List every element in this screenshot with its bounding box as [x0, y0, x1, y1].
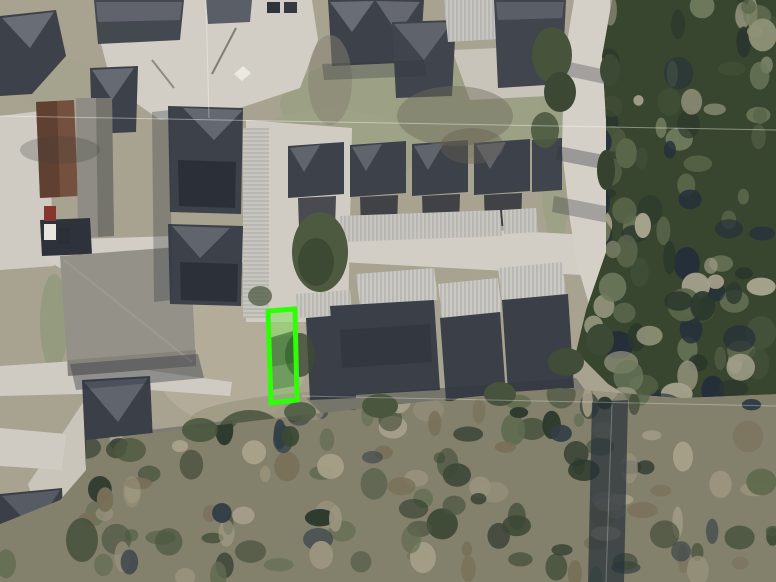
forest-edge-5 [484, 382, 516, 406]
car-dark [58, 228, 70, 244]
forest-edge-4 [548, 348, 584, 376]
shadow-bare-tree-plaza [308, 35, 352, 125]
shadow-bare-tree-lawn-2 [440, 128, 504, 164]
carport-row2-c-ribs [498, 262, 566, 300]
shadow-clusters-west [152, 110, 172, 302]
car-red [44, 206, 56, 221]
forest-edge-7 [284, 402, 316, 422]
forest-edge-8 [182, 418, 218, 442]
bush-parcel-north [248, 286, 272, 306]
forest-edge-9 [114, 438, 146, 462]
aerial-map [0, 0, 776, 582]
building-northeast-light [496, 2, 564, 20]
carport-row2-a-ribs [356, 268, 438, 306]
townhouse-west-upper-patio [178, 160, 236, 208]
tree-courtyard-core [298, 238, 334, 286]
map-feature-root [0, 0, 776, 582]
building-north-b [206, 0, 252, 24]
car-dark-2 [267, 2, 280, 13]
building-north-a-gable [96, 2, 182, 22]
carport-row2-b-ribs [438, 278, 502, 318]
parcel-bush-2 [270, 363, 295, 390]
pad-southwest [0, 428, 66, 470]
car-dark-3 [284, 2, 297, 13]
carport-row1-b-ribs [502, 208, 538, 234]
tree-east-3 [531, 112, 559, 148]
forest-edge-3 [586, 324, 614, 356]
tree-east-2 [544, 72, 576, 112]
forest-corridor [588, 400, 628, 582]
townhouse-west-lower-patio [180, 262, 238, 302]
forest-edge-10 [66, 518, 98, 562]
forest-edge-2 [597, 150, 615, 190]
forest-edge-1 [600, 54, 620, 86]
aerial-imagery-view[interactable] [0, 0, 776, 582]
townhouse-row2-c [502, 294, 574, 392]
car-white [44, 224, 56, 240]
townhouse-row2-a-ridge [340, 324, 432, 368]
shadow-northwest [20, 136, 100, 164]
building-gray-long-west-shade [96, 98, 114, 237]
